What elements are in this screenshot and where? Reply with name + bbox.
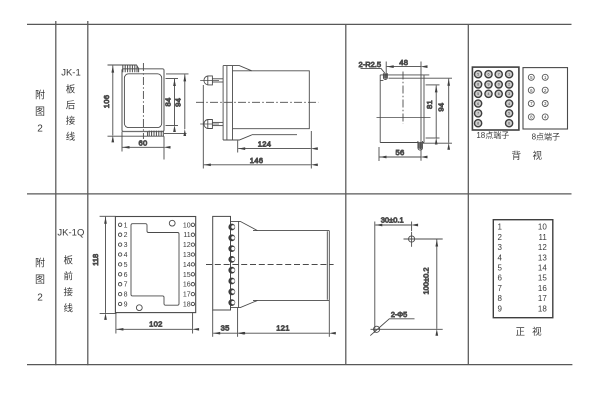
- svg-text:6: 6: [498, 274, 503, 283]
- svg-text:2-R2.5: 2-R2.5: [359, 60, 382, 69]
- svg-text:线: 线: [66, 131, 76, 143]
- svg-text:16: 16: [183, 282, 191, 289]
- svg-text:图: 图: [35, 106, 45, 118]
- svg-text:1: 1: [498, 223, 503, 232]
- svg-text:视: 视: [532, 150, 542, 162]
- svg-text:11: 11: [538, 233, 547, 242]
- svg-text:图: 图: [35, 274, 45, 286]
- svg-text:接: 接: [63, 286, 73, 298]
- svg-text:6: 6: [508, 122, 510, 126]
- svg-text:94: 94: [437, 103, 446, 112]
- svg-text:2: 2: [124, 232, 128, 239]
- svg-text:7: 7: [124, 282, 128, 289]
- svg-text:13: 13: [538, 253, 547, 262]
- svg-text:100±0.2: 100±0.2: [422, 267, 431, 294]
- svg-text:5: 5: [498, 264, 503, 273]
- svg-text:3: 3: [498, 243, 503, 252]
- svg-text:146: 146: [250, 156, 264, 165]
- svg-text:2: 2: [508, 83, 510, 87]
- svg-text:12: 12: [183, 242, 191, 249]
- svg-text:48: 48: [399, 58, 408, 67]
- svg-text:14: 14: [538, 264, 547, 273]
- svg-text:3: 3: [508, 92, 510, 96]
- svg-text:6: 6: [477, 102, 479, 106]
- svg-text:6: 6: [498, 92, 500, 96]
- svg-text:6: 6: [488, 73, 490, 77]
- svg-text:6: 6: [124, 272, 128, 279]
- svg-text:1: 1: [124, 222, 128, 229]
- svg-text:5: 5: [477, 92, 479, 96]
- svg-text:18: 18: [538, 304, 547, 313]
- svg-text:背: 背: [511, 150, 521, 162]
- svg-text:附: 附: [35, 256, 45, 269]
- svg-text:4: 4: [508, 102, 510, 106]
- svg-text:121: 121: [276, 324, 290, 333]
- svg-text:4: 4: [498, 253, 503, 262]
- svg-text:0: 0: [498, 83, 500, 87]
- svg-text:5: 5: [477, 73, 479, 77]
- svg-text:124: 124: [258, 140, 272, 149]
- svg-text:7: 7: [477, 112, 479, 116]
- svg-text:1: 1: [508, 73, 510, 77]
- svg-text:18: 18: [183, 302, 191, 309]
- svg-text:3: 3: [124, 242, 128, 249]
- svg-text:10: 10: [538, 223, 547, 232]
- svg-text:8点端子: 8点端子: [532, 132, 560, 142]
- svg-text:9: 9: [498, 304, 503, 313]
- svg-text:16: 16: [538, 284, 547, 293]
- svg-text:正: 正: [516, 327, 526, 338]
- svg-text:35: 35: [221, 324, 230, 333]
- svg-text:14: 14: [183, 262, 191, 269]
- svg-text:板: 板: [66, 84, 76, 96]
- svg-text:线: 线: [63, 302, 73, 314]
- svg-text:81: 81: [425, 100, 434, 109]
- svg-text:9: 9: [488, 83, 490, 87]
- svg-text:8: 8: [124, 292, 128, 299]
- svg-text:JK-1Q: JK-1Q: [57, 227, 84, 238]
- svg-text:18点端子: 18点端子: [476, 130, 509, 140]
- svg-text:2: 2: [37, 123, 43, 134]
- svg-text:8: 8: [477, 122, 479, 126]
- svg-text:5: 5: [508, 112, 510, 116]
- svg-text:7: 7: [498, 73, 500, 77]
- svg-text:JK-1: JK-1: [61, 68, 81, 79]
- svg-text:15: 15: [183, 272, 191, 279]
- svg-text:附: 附: [35, 89, 45, 102]
- svg-text:84: 84: [163, 97, 172, 106]
- svg-text:11: 11: [183, 232, 190, 239]
- svg-text:2: 2: [498, 233, 503, 242]
- svg-text:接: 接: [66, 115, 76, 127]
- svg-text:2-Φ5: 2-Φ5: [391, 310, 407, 319]
- svg-text:2: 2: [37, 293, 43, 304]
- svg-text:前: 前: [63, 270, 73, 282]
- svg-text:8: 8: [477, 83, 479, 87]
- svg-text:17: 17: [183, 292, 191, 299]
- svg-text:60: 60: [138, 139, 147, 148]
- svg-text:15: 15: [538, 274, 547, 283]
- svg-text:13: 13: [183, 252, 191, 259]
- svg-text:102: 102: [149, 320, 163, 329]
- svg-text:4: 4: [124, 252, 128, 259]
- svg-text:106: 106: [102, 95, 111, 109]
- svg-text:视: 视: [532, 326, 542, 338]
- svg-text:10: 10: [183, 222, 191, 229]
- svg-text:8: 8: [498, 294, 503, 303]
- svg-text:7: 7: [498, 284, 503, 293]
- svg-text:后: 后: [66, 100, 76, 111]
- svg-text:9: 9: [124, 302, 128, 309]
- svg-text:4: 4: [488, 92, 490, 96]
- svg-text:118: 118: [91, 254, 100, 266]
- svg-text:5: 5: [124, 262, 128, 269]
- svg-text:94: 94: [174, 98, 183, 107]
- svg-text:17: 17: [538, 294, 547, 303]
- svg-text:12: 12: [538, 243, 547, 252]
- svg-text:30±0.1: 30±0.1: [381, 215, 404, 224]
- svg-text:板: 板: [63, 255, 73, 267]
- svg-text:56: 56: [395, 148, 404, 157]
